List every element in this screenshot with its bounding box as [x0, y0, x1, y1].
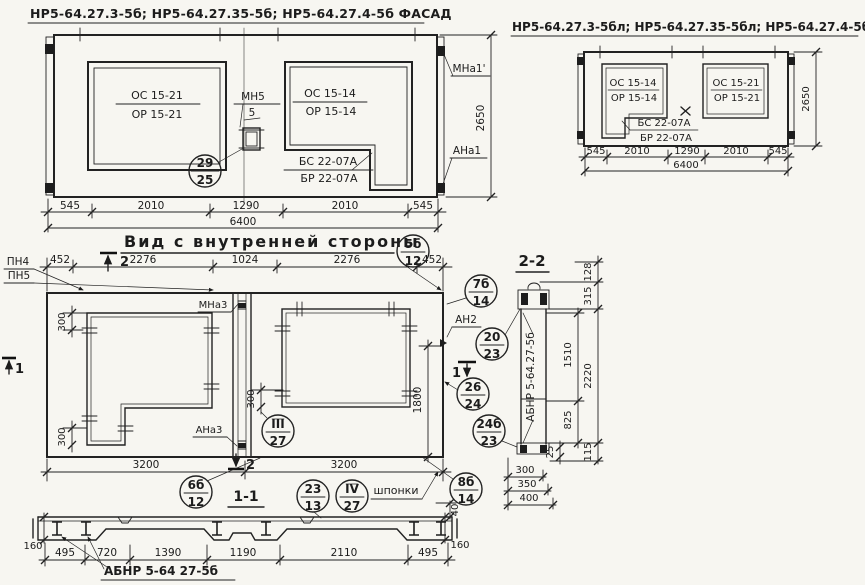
callout-top: 24б [476, 417, 501, 431]
hinge-number: 5 [249, 107, 256, 119]
callout-23-13: 23 13 [297, 480, 329, 518]
window-mark: ОР 15-14 [611, 93, 657, 104]
dim: 720 [97, 547, 117, 559]
window-mark: ОС 15-14 [609, 78, 656, 89]
dim: 452 [50, 254, 70, 266]
dim: 1190 [230, 547, 257, 559]
callout-20-23: 20 23 [476, 309, 520, 361]
opening-ticks [275, 302, 417, 396]
callout-8b-14: 8б 14 [422, 457, 482, 506]
inner-view-title: Вид с внутренней стороны [124, 232, 420, 251]
dim: 2010 [723, 146, 748, 157]
facade-left-panel [54, 35, 437, 197]
dim: 160 [23, 541, 42, 552]
dim: 315 [583, 286, 594, 305]
tie-plate [45, 183, 54, 193]
dim: 2010 [624, 146, 649, 157]
dim-height: 2650 [475, 105, 487, 132]
dim: 3200 [133, 459, 160, 471]
loop-label-pn4: ПН4 [7, 256, 30, 268]
callout-bottom: 27 [344, 499, 361, 513]
dim: 160 [450, 540, 469, 551]
inner-view-panel [47, 293, 443, 457]
dim: 1390 [155, 547, 182, 559]
cut-number: 2 [120, 255, 129, 270]
facade-right-title: НР5-64.27.3-5бл; НР5-64.27.35-5бл; НР5-6… [512, 20, 865, 34]
section-2-2-title: 2-2 [518, 252, 545, 270]
section-2-2-bottom-dims: 300 350 400 [504, 458, 557, 510]
callout-top: III [271, 417, 284, 431]
dim: 3200 [331, 459, 358, 471]
window-mark: ОС 15-14 [304, 87, 356, 100]
apron-mark: БР 22-07А [640, 133, 692, 144]
opening-right [282, 309, 410, 407]
anchor-label: АН2 [455, 314, 477, 326]
anchor-label: АНа3 [196, 425, 223, 436]
dim: 25 [545, 446, 556, 459]
callout-bottom: 25 [197, 173, 214, 187]
drawing-sheet: НР5-64.27.3-5б; НР5-64.27.35-5б; НР5-64.… [0, 0, 865, 585]
dim: 400 [519, 493, 538, 504]
dim: 545 [768, 146, 787, 157]
window-mark: ОС 15-21 [712, 78, 759, 89]
opening-ticks [82, 328, 219, 431]
window-mark: ОС 15-21 [131, 89, 183, 102]
dim: 300 [57, 312, 68, 331]
callout-top: 6б [188, 478, 205, 492]
facade-right-dimensions: 545 2010 1290 2010 545 6400 2650 [579, 48, 822, 176]
callout-top: 26 [465, 380, 482, 394]
window-opening [285, 62, 412, 190]
callout-top: 5б [405, 237, 422, 251]
callout-top: 29 [197, 156, 214, 170]
dim-300-top: 300 [57, 306, 88, 337]
tie-plate [45, 44, 54, 54]
apron-mark: БС 22-07А [299, 155, 358, 168]
callout-IV-27: IV 27 [336, 480, 368, 513]
key-notch [300, 517, 314, 523]
drawing-canvas: НР5-64.27.3-5б; НР5-64.27.35-5б; НР5-64.… [0, 0, 865, 585]
anchor-label: МНа1' [453, 63, 486, 75]
center-rib [233, 293, 251, 457]
window-mark: ОР 15-21 [132, 108, 183, 121]
section-2-2-view: 2-2 АБНР 5-64.27-5б 128 315 [504, 252, 603, 510]
cut-marker-1-left: 1 [2, 358, 24, 377]
callout-bottom: 12 [188, 495, 205, 509]
dim: 115 [583, 442, 594, 461]
cut-number: 2 [246, 458, 255, 473]
dim: 1290 [674, 146, 699, 157]
callout-bottom: 12 [405, 254, 422, 268]
callout-bottom: 14 [473, 294, 490, 308]
callout-top: 7б [473, 277, 490, 291]
anchor-label: АНа1 [453, 145, 481, 157]
section-2-2-dims: 128 315 2220 115 1510 825 25 [540, 256, 603, 465]
dim-1800: 1800 [412, 340, 443, 462]
dim: 300 [57, 427, 68, 446]
dim: 452 [422, 254, 442, 266]
dim: 545 [60, 200, 80, 212]
callout-top: 20 [484, 330, 501, 344]
callout-bottom: 23 [484, 347, 501, 361]
callout-top: 23 [305, 482, 322, 496]
callout-26-24: 26 24 [445, 378, 489, 411]
dim-300-bottom: 300 [57, 421, 87, 452]
callout-bottom: 24 [465, 397, 482, 411]
callout-29-25: 29 25 [189, 149, 242, 187]
key-notch [118, 517, 132, 523]
panel-mark-label: АБНР 5-64.27-5б [525, 332, 537, 421]
tie-plate [577, 131, 584, 139]
facade-right-view: НР5-64.27.3-5бл; НР5-64.27.35-5бл; НР5-6… [511, 20, 865, 176]
section-1-1-title: 1-1 [233, 489, 258, 505]
apron-mark: БР 22-07А [300, 172, 358, 185]
dim: 2010 [332, 200, 359, 212]
center-mark [681, 107, 690, 115]
shponki-label: шпонки [374, 484, 419, 497]
section-profile [38, 517, 452, 540]
dim: 350 [517, 479, 536, 490]
apron-mark: БС 22-07А [638, 118, 691, 129]
facade-left-title: НР5-64.27.3-5б; НР5-64.27.35-5б; НР5-64.… [30, 6, 452, 21]
callout-bottom: 27 [270, 434, 287, 448]
panel-mark-label: АБНР 5-64 27-5б [104, 564, 218, 578]
dim: 545 [586, 146, 605, 157]
tie-plate [437, 183, 445, 193]
cut-marker-2-top: 2 [100, 253, 129, 271]
dim: 40 [450, 504, 461, 517]
cut-number: 1 [15, 362, 24, 377]
dim: 495 [418, 547, 438, 559]
callout-bottom: 13 [305, 499, 322, 513]
dim: 1024 [232, 254, 259, 266]
opening-left [87, 313, 212, 445]
window-mark: ОР 15-21 [714, 93, 760, 104]
inner-view: Вид с внутренней стороны 452 2276 1024 2… [2, 232, 520, 518]
tie-plate [788, 57, 795, 65]
callout-top: 8б [458, 475, 475, 489]
dim: 128 [583, 262, 594, 281]
tie-plate [788, 131, 795, 139]
dim-total: 6400 [673, 160, 698, 171]
section-1-1-view: 160 160 40 495 720 1390 1190 [23, 499, 469, 580]
tie-plate [577, 57, 584, 65]
dim: 2110 [331, 547, 358, 559]
dim: 300 [246, 389, 257, 408]
cut-number: 1 [452, 366, 461, 381]
dim: 825 [563, 410, 574, 429]
dim: 2276 [130, 254, 157, 266]
loop-label-pn5: ПН5 [8, 270, 30, 282]
dim: 545 [413, 200, 433, 212]
lifting-loop [528, 283, 540, 289]
dim: 2010 [138, 200, 165, 212]
dim: 1510 [563, 342, 574, 367]
facade-left-view: НР5-64.27.3-5б; НР5-64.27.35-5б; НР5-64.… [28, 6, 497, 232]
callout-bottom: 23 [481, 434, 498, 448]
callout-top: IV [345, 482, 359, 496]
window-mark: ОР 15-14 [306, 105, 357, 118]
dim-total: 6400 [230, 216, 257, 228]
window-opening [703, 64, 768, 118]
dim: 1290 [233, 200, 260, 212]
dim: 2220 [583, 363, 594, 388]
dim: 300 [515, 465, 534, 476]
dim-height: 2650 [801, 86, 812, 111]
dim: 1800 [412, 387, 424, 414]
callout-24b-23: 24б 23 [473, 415, 517, 448]
dim: 2276 [334, 254, 361, 266]
dim: 495 [55, 547, 75, 559]
hinge-label: МН5 [241, 91, 265, 103]
callout-III-27: III 27 [261, 412, 294, 448]
section-1-1-dims: 495 720 1390 1190 2110 495 [39, 543, 455, 566]
anchor-label: МНа3 [199, 300, 228, 311]
callout-7b-14: 7б 14 [447, 275, 497, 308]
